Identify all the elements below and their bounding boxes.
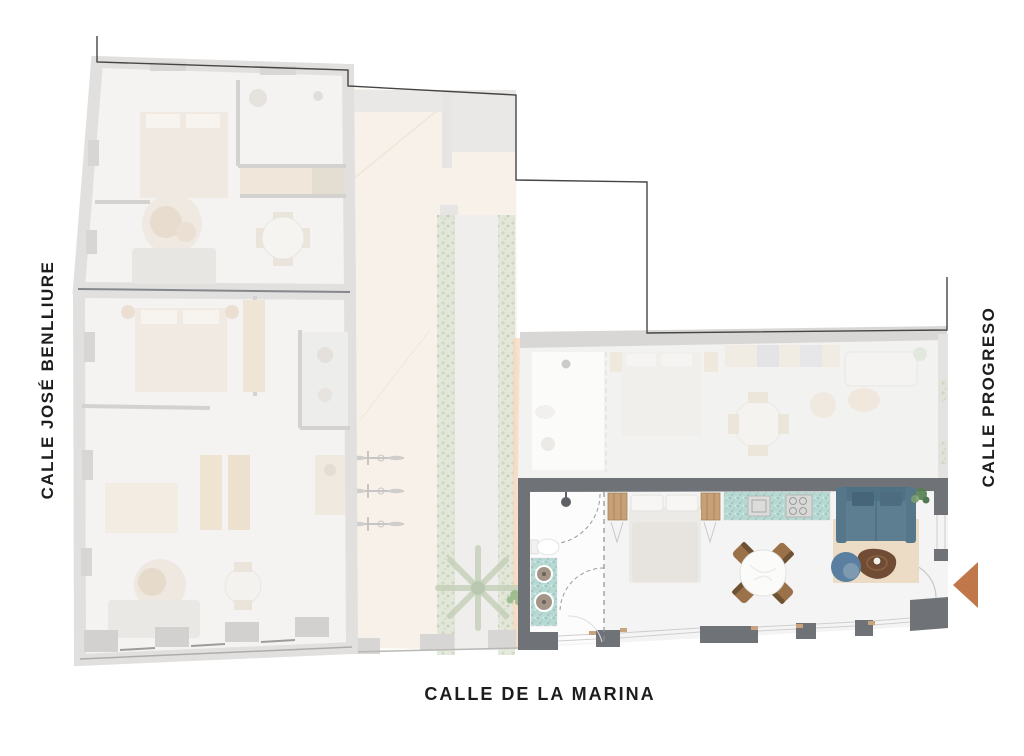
floor-plan-drawing bbox=[0, 0, 1024, 756]
rug-faded bbox=[142, 194, 202, 254]
sink-icon bbox=[748, 496, 770, 516]
unit-bottom-left-inactive[interactable] bbox=[79, 292, 352, 660]
right-wall-pier bbox=[910, 597, 948, 631]
unit-top-left-inactive[interactable] bbox=[79, 62, 350, 290]
palm-tree-icon bbox=[438, 548, 518, 628]
kitchen-counter bbox=[724, 492, 830, 520]
bathroom-faded bbox=[532, 352, 606, 472]
right-wall-pier bbox=[934, 549, 948, 561]
shower-head-icon bbox=[561, 497, 571, 507]
armchair-faded bbox=[810, 392, 836, 418]
armchair bbox=[831, 552, 861, 582]
wall-pier bbox=[86, 230, 97, 254]
bed-faded bbox=[610, 352, 718, 436]
plant-faded bbox=[913, 347, 927, 361]
bed-2-faded bbox=[105, 483, 178, 533]
floor-plan-page: CALLE JOSÉ BENLLIURE CALLE PROGRESO CALL… bbox=[0, 0, 1024, 756]
active-apartment[interactable] bbox=[518, 478, 948, 650]
courtyard-patio bbox=[340, 86, 521, 655]
wardrobe-faded bbox=[243, 300, 265, 392]
unit-top-right-inactive[interactable] bbox=[518, 326, 948, 478]
pouf-faded bbox=[848, 388, 880, 412]
hedge-patch bbox=[939, 380, 947, 402]
sofa bbox=[836, 487, 916, 543]
walkway bbox=[348, 90, 445, 112]
sofa-faded bbox=[845, 352, 917, 386]
left-wall bbox=[518, 478, 530, 650]
nightstand bbox=[608, 493, 627, 520]
basin-drain bbox=[542, 600, 546, 604]
kitchen-faded bbox=[240, 168, 344, 194]
entrance-arrow-icon bbox=[953, 562, 978, 608]
pillow bbox=[666, 495, 698, 511]
walkway bbox=[452, 90, 516, 152]
bathroom-faded bbox=[302, 332, 348, 426]
basin-drain bbox=[542, 572, 546, 576]
kitchen bbox=[724, 492, 830, 520]
toilet-icon bbox=[537, 539, 559, 555]
wall-pier bbox=[81, 548, 92, 576]
street-label-jose-benlliure: CALLE JOSÉ BENLLIURE bbox=[38, 260, 58, 500]
street-label-de-la-marina: CALLE DE LA MARINA bbox=[390, 684, 690, 705]
dining-set bbox=[731, 541, 794, 604]
kitchen-faded bbox=[315, 455, 345, 515]
nightstand bbox=[701, 493, 720, 520]
duvet bbox=[632, 522, 698, 582]
wall-pier bbox=[88, 140, 99, 166]
right-wall-pier bbox=[934, 491, 948, 515]
pillow bbox=[631, 495, 663, 511]
kitchen-faded bbox=[725, 345, 840, 367]
wall-pier bbox=[84, 332, 95, 362]
hedge-patch bbox=[939, 442, 947, 464]
bed-faded bbox=[140, 112, 228, 198]
street-label-progreso: CALLE PROGRESO bbox=[979, 297, 999, 497]
wall-pier bbox=[82, 450, 93, 480]
sofa-faded bbox=[132, 248, 216, 284]
bed-faded bbox=[121, 305, 239, 392]
hob-icon bbox=[786, 495, 812, 517]
walkway bbox=[442, 90, 452, 168]
